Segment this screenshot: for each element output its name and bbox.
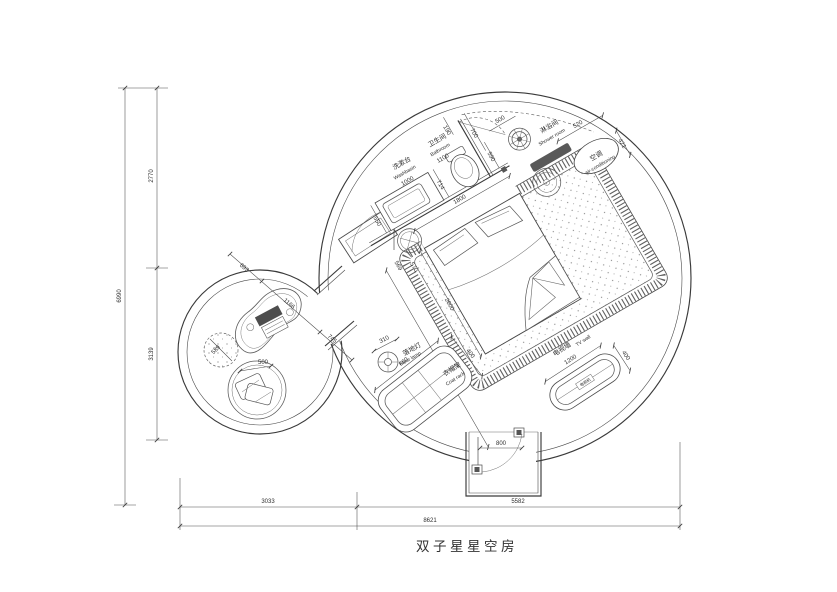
drawing-title: 双子星星空房 <box>416 539 518 554</box>
toilet <box>442 144 485 192</box>
dim-1800: 1800 <box>453 194 468 206</box>
tv-wall: 电视机 1200 400 <box>536 330 637 418</box>
dim-1200: 1200 <box>564 354 579 367</box>
shower-head <box>504 124 534 154</box>
dim-bottom-right: 5582 <box>511 499 525 505</box>
dim-left-lower: 3139 <box>149 347 155 361</box>
dim-800: 800 <box>496 441 507 447</box>
dim-310: 310 <box>379 335 391 345</box>
floor-plan-page: 空调 air-conditioning 洗漱台 Washbasin 1000 卫… <box>0 0 837 592</box>
dim-520: 520 <box>572 119 584 130</box>
floor-plan-canvas: 空调 air-conditioning 洗漱台 Washbasin 1000 卫… <box>0 0 837 592</box>
beanbag: 589 <box>204 333 238 367</box>
dim-500-door: 500 <box>495 115 507 126</box>
dim-400-tv: 400 <box>620 350 631 362</box>
tv-wall-label-en: TV wall <box>575 334 592 348</box>
dim-700: 700 <box>468 128 479 140</box>
dim-bottom-total: 8621 <box>423 518 437 524</box>
dim-569: 569 <box>393 260 404 272</box>
dim-left-upper: 2770 <box>149 169 155 183</box>
dim-bottom-left: 3033 <box>261 499 275 505</box>
dim-500-seat: 500 <box>258 360 269 366</box>
dim-left-total: 6990 <box>117 289 123 303</box>
dim-590: 590 <box>485 151 496 163</box>
cushion-seat: 500 <box>228 360 286 419</box>
